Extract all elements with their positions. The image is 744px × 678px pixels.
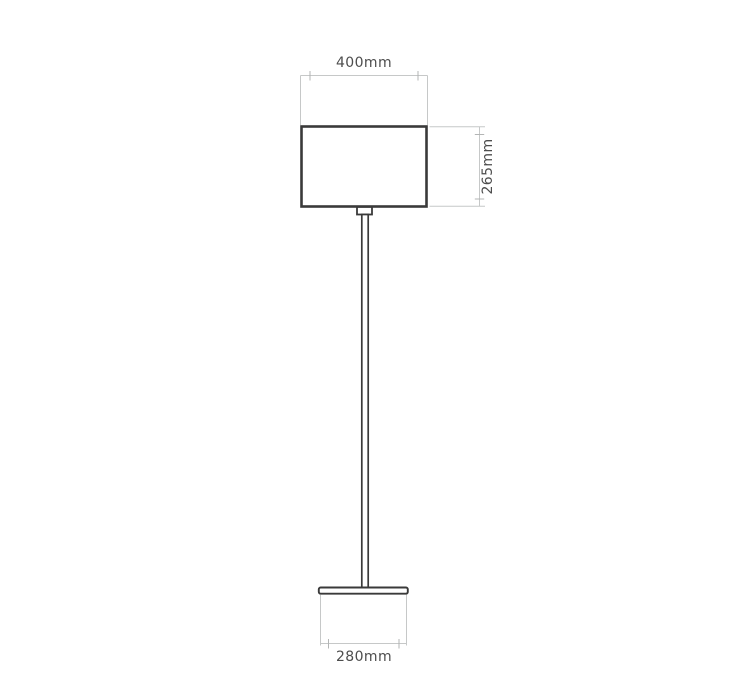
shade-height-dimension: 265mm	[430, 127, 497, 206]
lampshade	[302, 127, 427, 207]
shade-width-label: 400mm	[336, 55, 392, 71]
shade-width-dimension: 400mm	[301, 55, 428, 125]
base	[319, 588, 408, 594]
collar	[357, 207, 372, 215]
base-width-dimension: 280mm	[321, 595, 407, 666]
dimension-drawing: 400mm 265mm 280mm	[0, 0, 744, 678]
stem	[362, 215, 368, 589]
lamp-body	[302, 127, 427, 594]
base-width-label: 280mm	[336, 649, 392, 665]
shade-height-label: 265mm	[480, 139, 496, 195]
lamp-technical-drawing: 400mm 265mm 280mm	[0, 0, 744, 678]
